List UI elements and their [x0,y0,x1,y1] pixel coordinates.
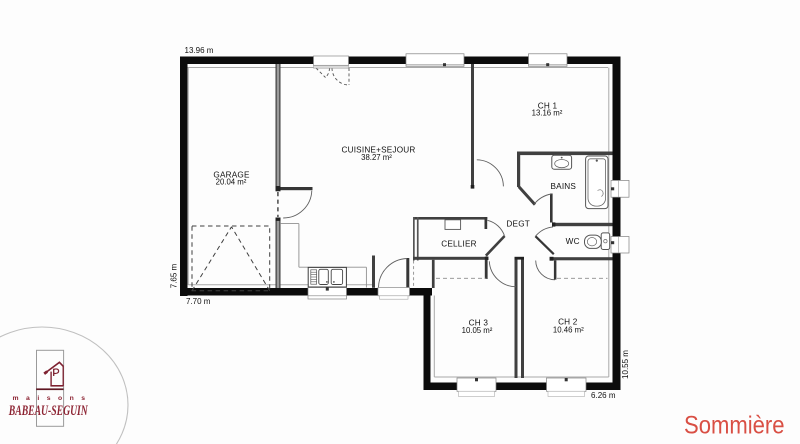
svg-text:10.55 m: 10.55 m [621,350,630,379]
svg-text:13.16 m²: 13.16 m² [532,109,563,118]
svg-text:6.26 m: 6.26 m [591,391,616,400]
svg-text:13.96 m: 13.96 m [185,46,214,55]
svg-text:7.70 m: 7.70 m [186,297,211,306]
svg-text:10.05 m²: 10.05 m² [462,326,493,335]
svg-text:maisons: maisons [13,395,93,402]
svg-text:CELLIER: CELLIER [441,239,477,248]
svg-text:10.46 m²: 10.46 m² [553,325,584,334]
svg-text:7.65 m: 7.65 m [170,263,179,288]
svg-text:BABEAU-SEGUIN: BABEAU-SEGUIN [8,403,88,419]
svg-text:20.04 m²: 20.04 m² [216,178,247,187]
svg-text:WC: WC [566,237,580,246]
svg-text:DEGT: DEGT [506,219,530,228]
svg-text:Sommière: Sommière [684,412,785,440]
svg-text:38.27 m²: 38.27 m² [361,153,392,162]
svg-text:BAINS: BAINS [551,182,577,191]
